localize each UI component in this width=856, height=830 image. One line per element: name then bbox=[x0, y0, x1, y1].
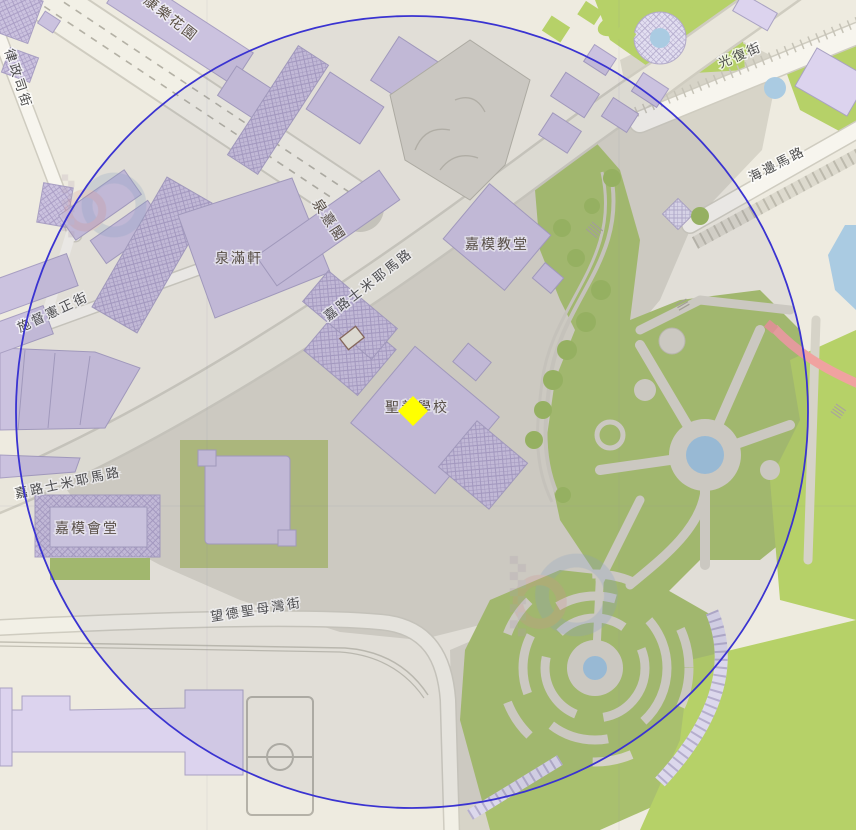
map-canvas[interactable]: 康樂花園 律政司街 泉憙閣 泉滿軒 嘉模教堂 嘉路士米耶馬路 施督憲正街 聖善學… bbox=[0, 0, 856, 830]
